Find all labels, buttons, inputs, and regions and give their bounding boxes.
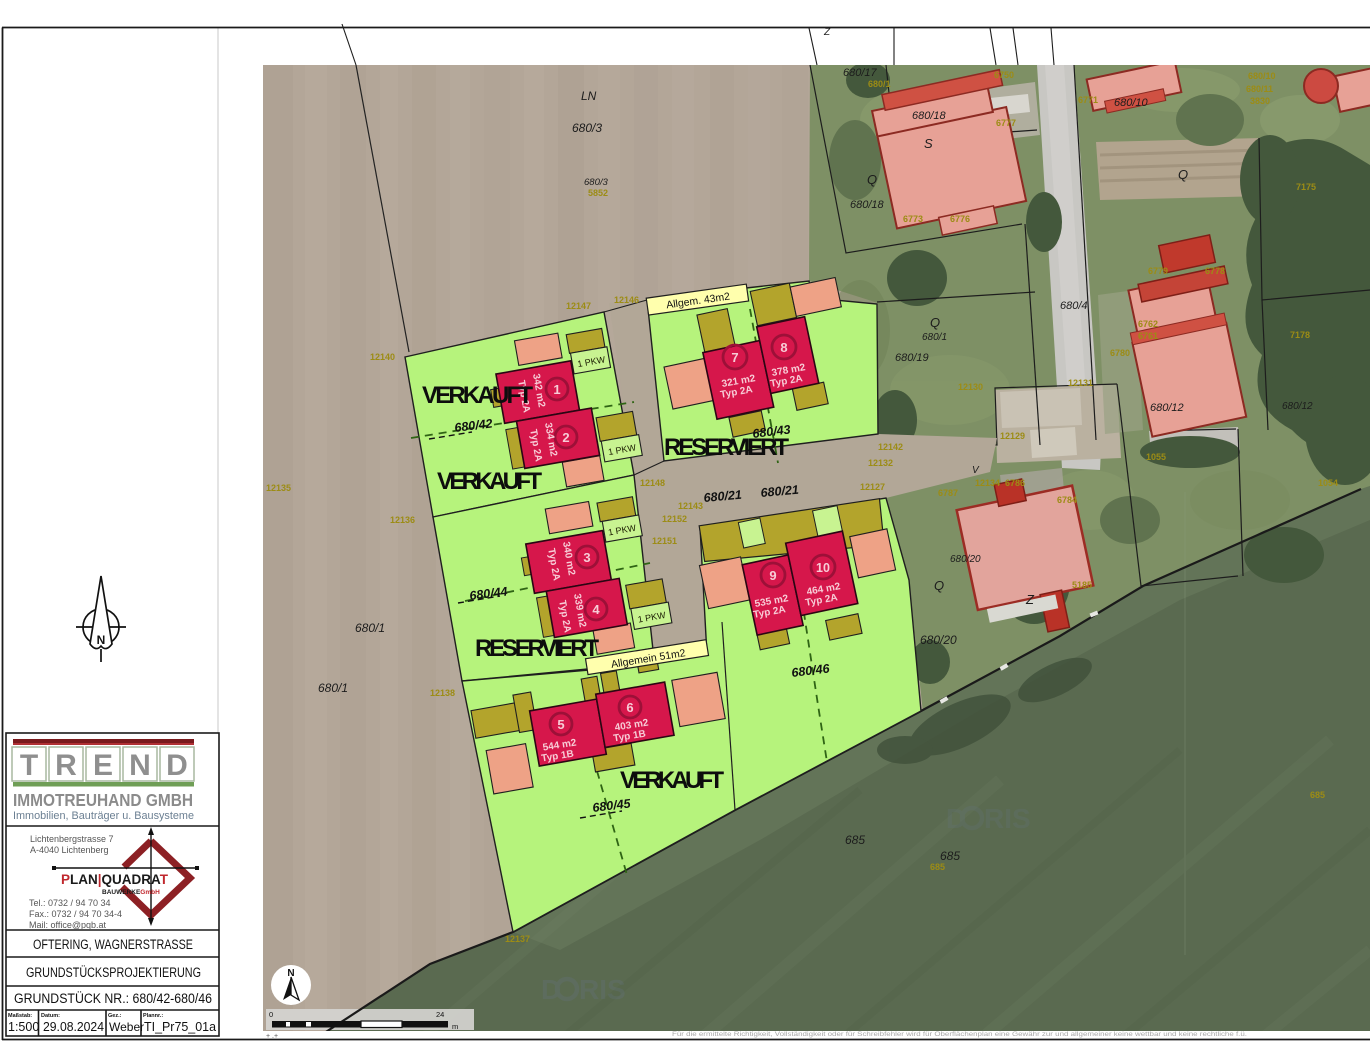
svg-text:+ .+: + .+ (266, 1033, 278, 1040)
svg-text:1054: 1054 (1318, 478, 1338, 488)
svg-text:7: 7 (731, 350, 738, 365)
svg-text:6771: 6771 (1078, 95, 1098, 105)
svg-text:680/12: 680/12 (1282, 401, 1313, 412)
svg-text:685: 685 (940, 849, 960, 863)
svg-text:7178: 7178 (1290, 330, 1310, 340)
svg-text:Maßstab:: Maßstab: (8, 1013, 32, 1019)
svg-text:Q: Q (934, 578, 944, 593)
svg-text:6779: 6779 (1148, 266, 1168, 276)
svg-text:5852: 5852 (588, 188, 608, 198)
svg-text:12138: 12138 (430, 688, 455, 698)
svg-text:12130: 12130 (958, 382, 983, 392)
svg-text:12127: 12127 (860, 482, 885, 492)
svg-text:680/12: 680/12 (1150, 402, 1184, 414)
svg-text:12142: 12142 (878, 442, 903, 452)
svg-text:6761: 6761 (1138, 331, 1158, 341)
svg-text:680/20: 680/20 (920, 633, 957, 647)
svg-text:8: 8 (780, 340, 787, 355)
svg-text:680/20: 680/20 (950, 554, 981, 565)
svg-text:680/1: 680/1 (355, 621, 385, 635)
svg-text:1: 1 (553, 382, 560, 397)
svg-text:Q: Q (1178, 167, 1188, 182)
svg-text:680/10: 680/10 (1248, 71, 1276, 81)
svg-text:7175: 7175 (1296, 182, 1316, 192)
svg-text:680/1: 680/1 (922, 332, 947, 343)
svg-text:680/10: 680/10 (1114, 97, 1149, 109)
svg-text:680/18: 680/18 (912, 110, 947, 122)
svg-text:Weber: Weber (109, 1020, 144, 1034)
svg-text:29.08.2024: 29.08.2024 (43, 1019, 104, 1034)
svg-text:680/3: 680/3 (572, 121, 602, 135)
svg-text:6776: 6776 (950, 214, 970, 224)
svg-text:680/17: 680/17 (843, 67, 878, 79)
svg-text:6: 6 (626, 700, 633, 715)
svg-text:680/19: 680/19 (895, 352, 929, 364)
svg-text:685: 685 (930, 862, 945, 872)
svg-text:m: m (452, 1022, 458, 1031)
svg-text:Lichtenbergstrasse 7: Lichtenbergstrasse 7 (30, 834, 114, 844)
svg-text:VERKAUFT: VERKAUFT (422, 382, 533, 409)
svg-text:12129: 12129 (1000, 431, 1025, 441)
svg-text:A-4040 Lichtenberg: A-4040 Lichtenberg (30, 845, 109, 855)
svg-text:R: R (55, 749, 77, 782)
svg-text:12135: 12135 (266, 483, 291, 493)
svg-text:6773: 6773 (903, 214, 923, 224)
svg-text:Q: Q (930, 315, 940, 330)
svg-text:12140: 12140 (370, 352, 395, 362)
svg-text:680/18: 680/18 (850, 199, 885, 211)
svg-text:TI_Pr75_01a: TI_Pr75_01a (144, 1019, 217, 1034)
svg-text:6780: 6780 (1110, 348, 1130, 358)
svg-text:680/1: 680/1 (868, 79, 891, 89)
svg-text:685: 685 (845, 833, 865, 847)
svg-text:680/11: 680/11 (1246, 84, 1273, 94)
svg-text:12132: 12132 (868, 458, 893, 468)
svg-text:6786: 6786 (1005, 478, 1025, 488)
svg-text:5: 5 (557, 717, 564, 732)
svg-text:N: N (97, 633, 106, 647)
svg-text:685: 685 (1310, 790, 1325, 800)
svg-text:0: 0 (269, 1010, 273, 1019)
svg-text:6777: 6777 (996, 118, 1016, 128)
svg-text:N: N (129, 749, 151, 782)
svg-text:12131: 12131 (1068, 378, 1093, 388)
svg-text:Mail: office@pqb.at: Mail: office@pqb.at (29, 920, 107, 930)
svg-text:D: D (166, 749, 188, 782)
svg-text:12147: 12147 (566, 301, 591, 311)
svg-text:6762: 6762 (1138, 319, 1158, 329)
svg-text:1:500: 1:500 (8, 1020, 39, 1034)
svg-text:E: E (93, 749, 113, 782)
svg-text:S: S (924, 136, 933, 151)
svg-text:RESERVIERT: RESERVIERT (475, 635, 599, 662)
svg-text:VERKAUFT: VERKAUFT (620, 767, 724, 794)
svg-text:6784: 6784 (1057, 495, 1077, 505)
svg-text:12151: 12151 (652, 536, 677, 546)
svg-text:Z: Z (823, 27, 831, 38)
svg-text:680/4: 680/4 (1060, 300, 1088, 312)
svg-text:12134: 12134 (975, 478, 1000, 488)
svg-text:12146: 12146 (614, 295, 639, 305)
svg-text:Fax.: 0732 / 94 70 34-4: Fax.: 0732 / 94 70 34-4 (29, 909, 122, 919)
svg-text:VERKAUFT: VERKAUFT (437, 468, 542, 495)
svg-text:1055: 1055 (1146, 452, 1166, 462)
svg-text:6778: 6778 (1205, 266, 1225, 276)
svg-text:Gez.:: Gez.: (108, 1013, 122, 1019)
svg-text:10: 10 (816, 561, 830, 575)
svg-text:12148: 12148 (640, 478, 665, 488)
svg-text:Q: Q (867, 172, 877, 187)
svg-text:12136: 12136 (390, 515, 415, 525)
svg-text:Für die ermittelte Richtigkeit: Für die ermittelte Richtigkeit, Vollstän… (672, 1032, 1247, 1038)
svg-text:6750: 6750 (994, 70, 1014, 80)
svg-text:680/3: 680/3 (584, 177, 608, 188)
svg-text:GRUNDSTÜCKSPROJEKTIERUNG: GRUNDSTÜCKSPROJEKTIERUNG (26, 965, 201, 980)
svg-text:OFTERING, WAGNERSTRASSE: OFTERING, WAGNERSTRASSE (33, 937, 193, 952)
svg-text:4: 4 (592, 602, 600, 617)
svg-text:12137: 12137 (505, 934, 530, 944)
svg-text:3830: 3830 (1250, 96, 1270, 106)
svg-text:Z: Z (1025, 592, 1035, 607)
svg-text:12143: 12143 (678, 501, 703, 511)
svg-text:LN: LN (581, 89, 597, 103)
svg-text:Immobilien, Bauträger u. Bausy: Immobilien, Bauträger u. Bausysteme (13, 810, 194, 822)
svg-text:T: T (20, 749, 38, 782)
svg-text:12152: 12152 (662, 514, 687, 524)
svg-text:6787: 6787 (938, 488, 958, 498)
svg-text:5185: 5185 (1072, 580, 1092, 590)
svg-text:RIS: RIS (984, 803, 1031, 834)
svg-text:BAUWERKEGmbH: BAUWERKEGmbH (102, 889, 160, 896)
svg-text:9: 9 (769, 568, 776, 583)
svg-text:Tel.: 0732 / 94 70 34: Tel.: 0732 / 94 70 34 (29, 898, 111, 908)
svg-text:24: 24 (436, 1010, 444, 1019)
svg-text:2: 2 (562, 430, 569, 445)
svg-text:3: 3 (583, 550, 590, 565)
svg-text:RIS: RIS (579, 974, 626, 1005)
svg-text:IMMOTREUHAND GMBH: IMMOTREUHAND GMBH (13, 790, 193, 810)
svg-text:680/1: 680/1 (318, 681, 348, 695)
svg-text:GRUNDSTÜCK NR.: 680/42-680/46: GRUNDSTÜCK NR.: 680/42-680/46 (14, 991, 212, 1006)
svg-text:PLAN|QUADRAT: PLAN|QUADRAT (61, 872, 169, 887)
